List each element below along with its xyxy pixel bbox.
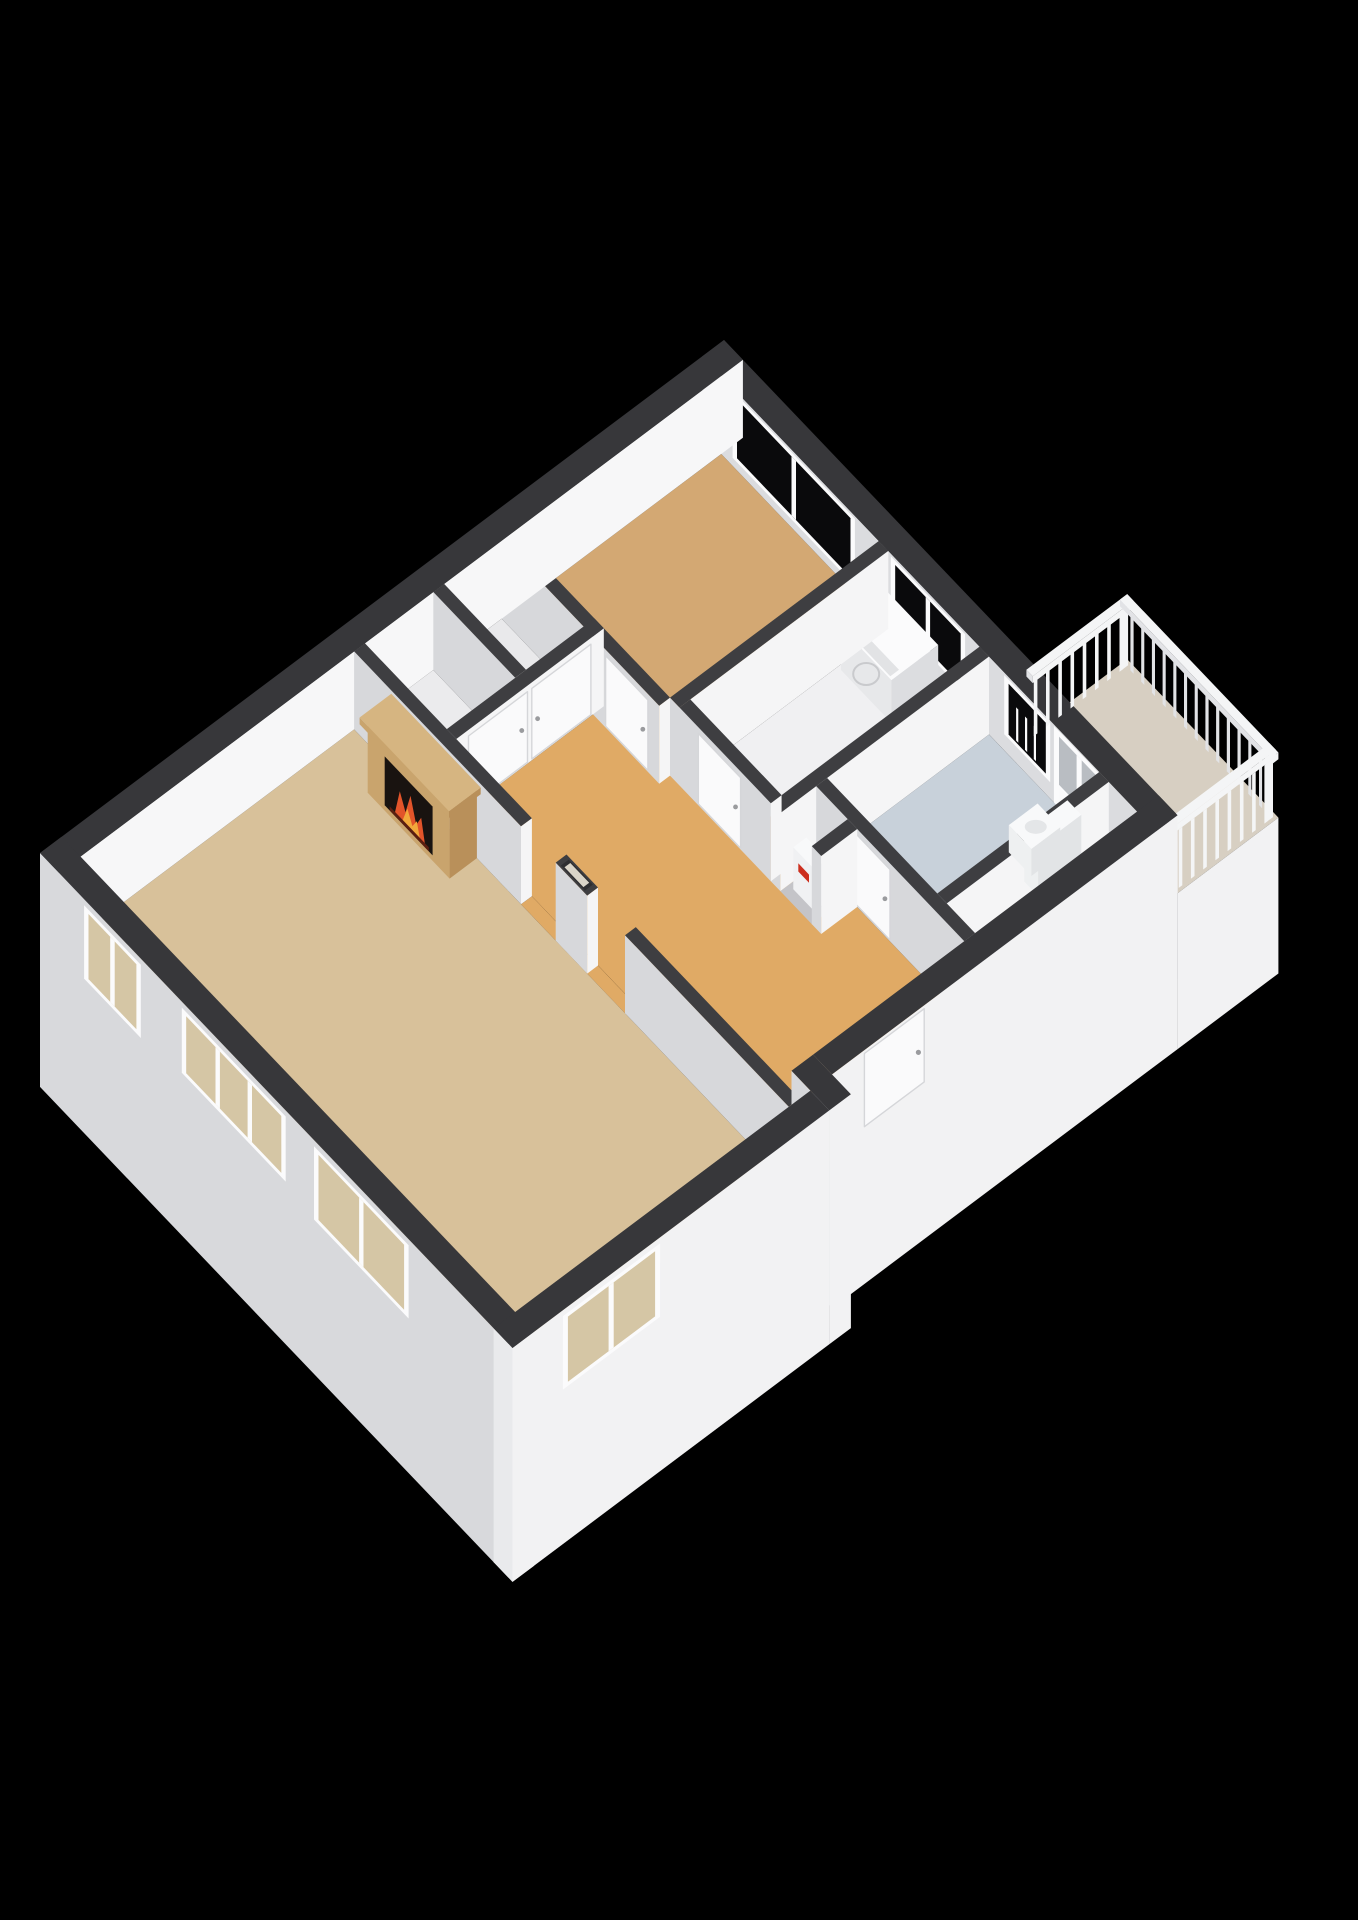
floor-plan-stage (0, 0, 1358, 1920)
floor-plan-3d (0, 0, 1358, 1920)
